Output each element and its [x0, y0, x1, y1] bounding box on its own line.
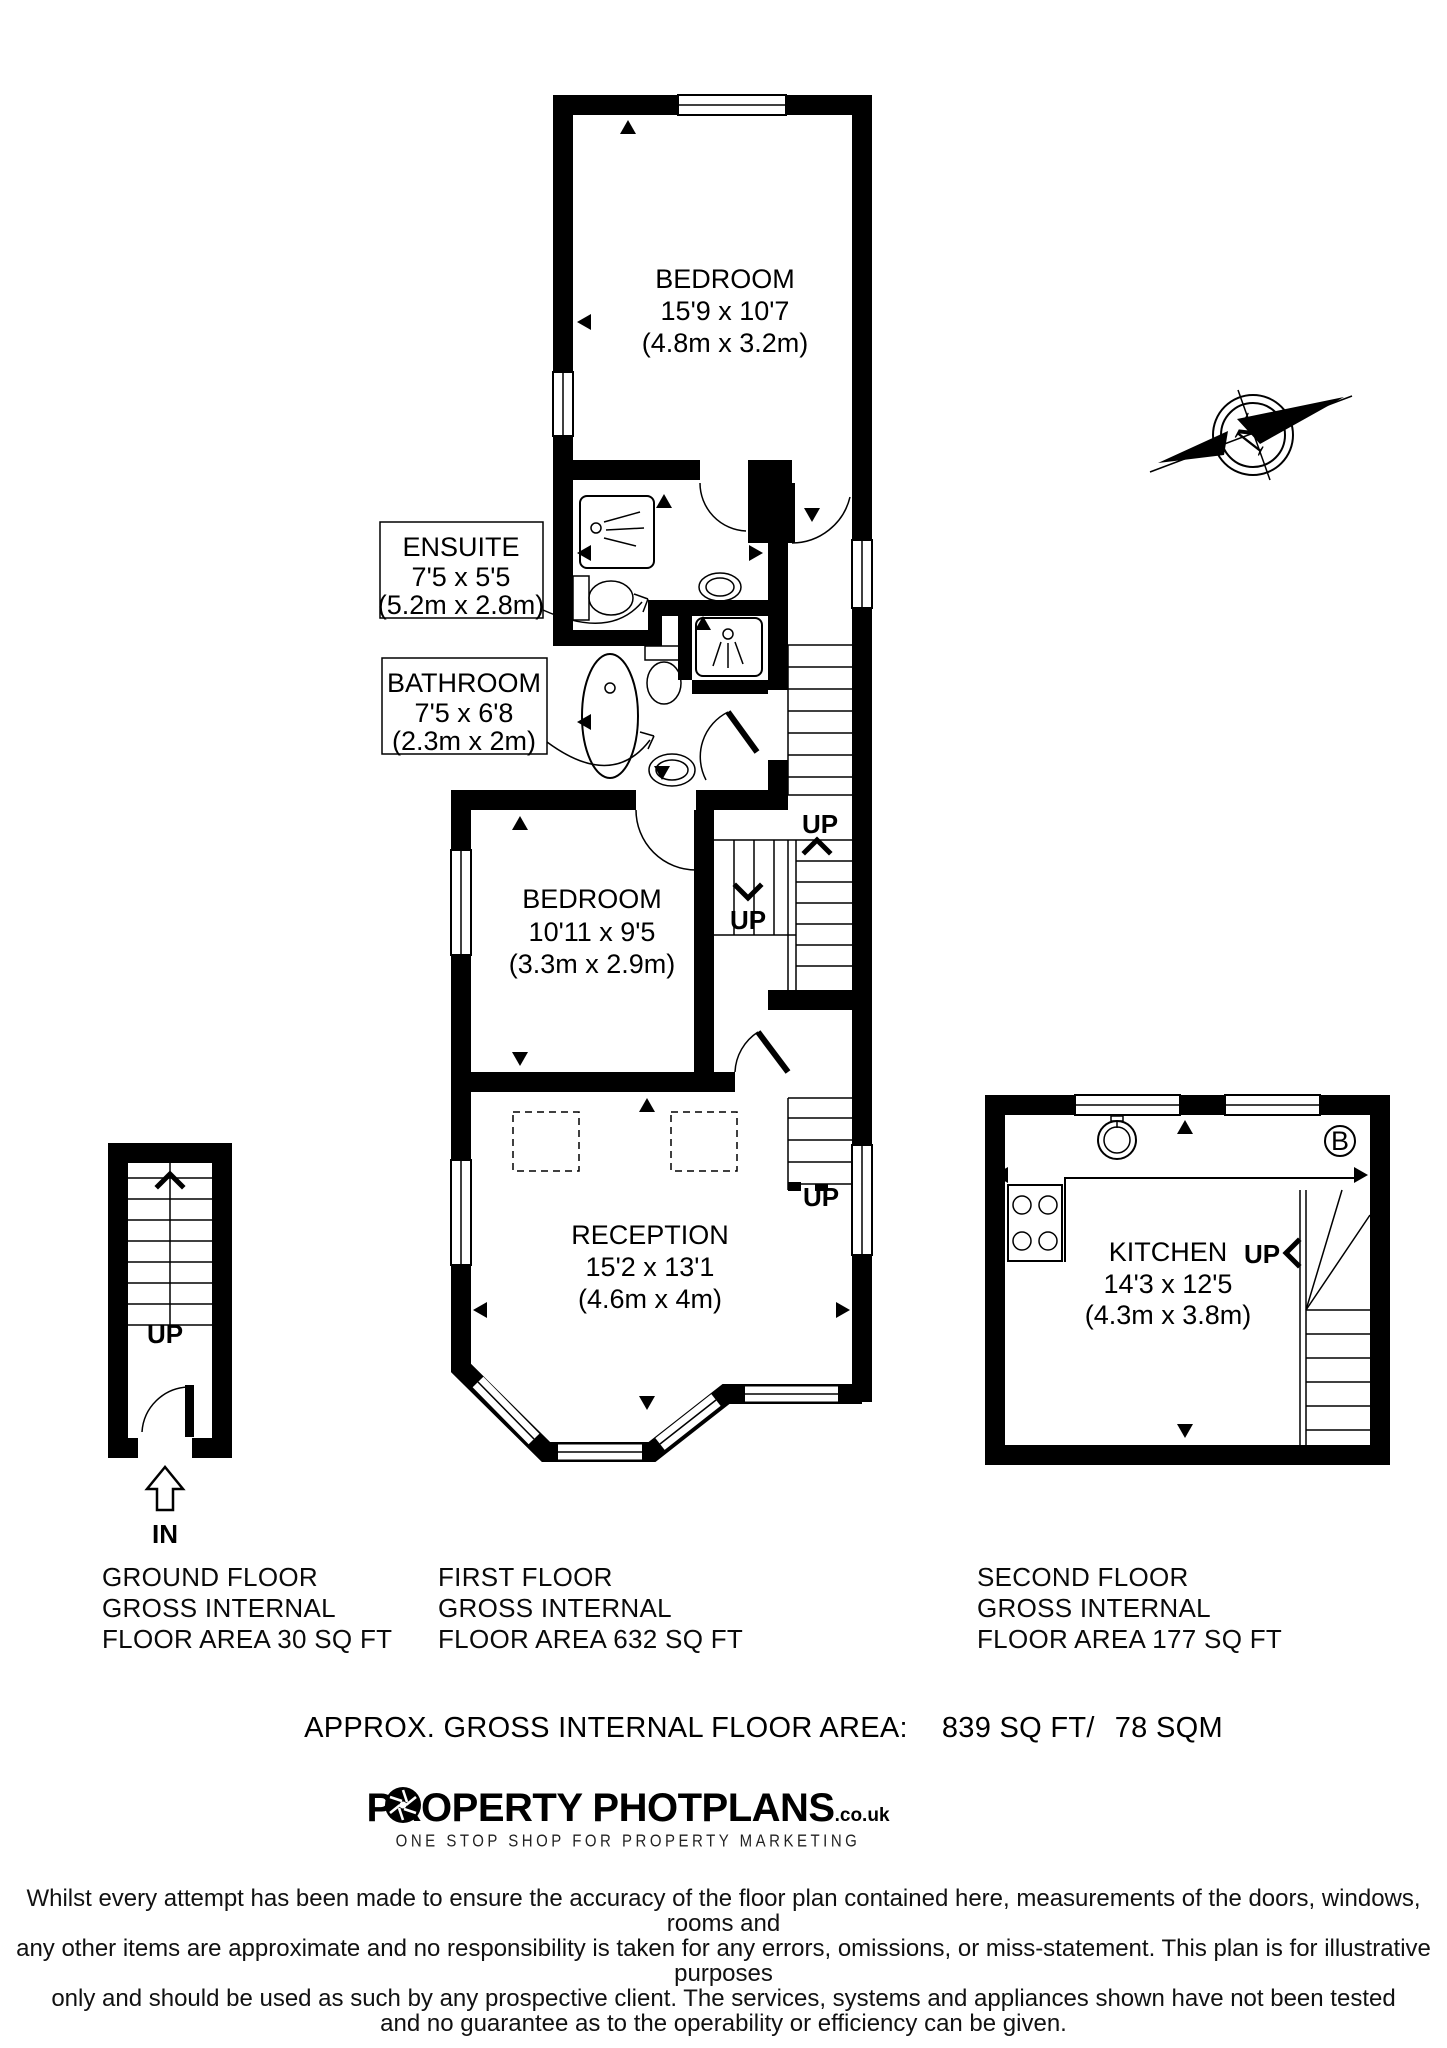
compass: N — [1150, 390, 1352, 480]
ground-floor-summary: GROUND FLOOR GROSS INTERNAL FLOOR AREA 3… — [102, 1562, 392, 1655]
disclaimer-line: and no guarantee as to the operability o… — [0, 2011, 1447, 2036]
window — [852, 1145, 872, 1255]
room-label-kitchen: KITCHEN 14'3 x 12'5 (4.3m x 3.8m) — [1085, 1237, 1252, 1330]
svg-text:(4.3m x 3.8m): (4.3m x 3.8m) — [1085, 1300, 1252, 1330]
floor-title: SECOND FLOOR — [977, 1562, 1282, 1593]
door-arc — [142, 1387, 188, 1432]
disclaimer: Whilst every attempt has been made to en… — [0, 1886, 1447, 2036]
hob-icon — [1008, 1185, 1062, 1261]
svg-text:BEDROOM: BEDROOM — [522, 884, 662, 914]
logo-tagline: ONE STOP SHOP FOR PROPERTY MARKETING — [383, 1832, 873, 1852]
window — [553, 372, 573, 436]
window — [678, 95, 786, 115]
svg-text:15'9 x 10'7: 15'9 x 10'7 — [661, 296, 790, 326]
up-label-kitchen: UP — [1244, 1239, 1280, 1269]
door-leaf — [185, 1385, 194, 1437]
room-label-bedroom1: BEDROOM 15'9 x 10'7 (4.8m x 3.2m) — [642, 264, 809, 358]
toilet-icon — [645, 646, 683, 704]
floor-title: FIRST FLOOR — [438, 1562, 743, 1593]
floor-line: GROSS INTERNAL — [977, 1593, 1282, 1624]
floor-line: GROSS INTERNAL — [438, 1593, 743, 1624]
stairs-kitchen-winder — [1300, 1190, 1370, 1445]
svg-text:ENSUITE: ENSUITE — [402, 532, 519, 562]
disclaimer-line: any other items are approximate and no r… — [0, 1936, 1447, 1986]
stairs-ground-floor — [128, 1163, 212, 1325]
svg-text:RECEPTION: RECEPTION — [571, 1220, 729, 1250]
total-area-line: APPROX. GROSS INTERNAL FLOOR AREA:839 SQ… — [40, 1712, 1447, 1745]
direction-chevrons — [147, 840, 1298, 1510]
shower-icon — [580, 496, 654, 568]
doors — [142, 483, 850, 1437]
disclaimer-line: Whilst every attempt has been made to en… — [0, 1886, 1447, 1936]
svg-text:(5.2m x 2.8m): (5.2m x 2.8m) — [378, 590, 545, 620]
floor-line: FLOOR AREA 177 SQ FT — [977, 1624, 1282, 1655]
entry-arrow-icon — [147, 1467, 183, 1510]
second-floor-summary: SECOND FLOOR GROSS INTERNAL FLOOR AREA 1… — [977, 1562, 1282, 1655]
floor-line: GROSS INTERNAL — [102, 1593, 392, 1624]
sink-icon — [1098, 1116, 1136, 1159]
door-arc — [636, 810, 696, 870]
svg-text:(4.8m x 3.2m): (4.8m x 3.2m) — [642, 328, 809, 358]
sink-icon — [699, 573, 741, 601]
boiler-icon: B — [1325, 1126, 1355, 1156]
total-area-sqft: 839 SQ FT/ — [942, 1712, 1095, 1745]
total-area-sqm: 78 SQM — [1115, 1712, 1223, 1745]
window — [1225, 1095, 1320, 1115]
up-label-first-top: UP — [802, 809, 838, 839]
door-arc — [735, 1032, 758, 1072]
svg-text:7'5 x 5'5: 7'5 x 5'5 — [412, 562, 511, 592]
svg-text:15'2 x 13'1: 15'2 x 13'1 — [586, 1252, 715, 1282]
room-label-bedroom2: BEDROOM 10'11 x 9'5 (3.3m x 2.9m) — [509, 884, 676, 979]
svg-text:(3.3m x 2.9m): (3.3m x 2.9m) — [509, 949, 676, 979]
toilet-icon — [573, 576, 633, 620]
room-label-reception: RECEPTION 15'2 x 13'1 (4.6m x 4m) — [571, 1220, 729, 1314]
floor-line: FLOOR AREA 632 SQ FT — [438, 1624, 743, 1655]
window — [451, 1160, 471, 1265]
camera-aperture-icon — [384, 1786, 422, 1824]
door-leaf — [758, 1032, 788, 1072]
up-label-reception: UP — [803, 1182, 839, 1212]
boiler-label: B — [1331, 1126, 1349, 1156]
stairs-reception — [788, 1098, 852, 1191]
svg-text:7'5 x 6'8: 7'5 x 6'8 — [415, 698, 514, 728]
dashed-furniture — [513, 1112, 737, 1171]
window — [852, 540, 872, 608]
first-floor-summary: FIRST FLOOR GROSS INTERNAL FLOOR AREA 63… — [438, 1562, 743, 1655]
bathroom-leader-arrow — [640, 732, 654, 749]
compass-south-pointer — [1158, 431, 1228, 463]
up-chevron-first — [805, 840, 829, 852]
down-chevron-first — [736, 886, 760, 898]
logo-suffix: .co.uk — [835, 1805, 890, 1827]
svg-text:BATHROOM: BATHROOM — [387, 668, 541, 698]
up-label-ground: UP — [147, 1319, 183, 1349]
logo: PROPERTY PHOT PLANS .co.uk ONE STOP SHOP… — [383, 1786, 873, 1850]
disclaimer-line: only and should be used as such by any p… — [0, 1986, 1447, 2011]
floor-line: FLOOR AREA 30 SQ FT — [102, 1624, 392, 1655]
svg-text:10'11 x 9'5: 10'11 x 9'5 — [529, 917, 656, 947]
floor-title: GROUND FLOOR — [102, 1562, 392, 1593]
logo-text-right: PLANS — [702, 1786, 835, 1831]
window — [451, 850, 471, 955]
door-arc — [700, 712, 728, 780]
total-area-label: APPROX. GROSS INTERNAL FLOOR AREA: — [304, 1712, 908, 1745]
door-arc — [792, 497, 850, 543]
window — [1075, 1095, 1180, 1115]
door-leaf — [728, 712, 757, 752]
svg-text:KITCHEN: KITCHEN — [1109, 1237, 1228, 1267]
svg-text:(4.6m x 4m): (4.6m x 4m) — [578, 1284, 722, 1314]
floorplan-page: { "compass": { "north_label": "N" }, "ro… — [0, 0, 1447, 2048]
svg-text:BEDROOM: BEDROOM — [655, 264, 795, 294]
left-chevron-kitchen — [1286, 1241, 1298, 1265]
up-label-first-mid: UP — [730, 905, 766, 935]
door-arc — [700, 483, 746, 531]
svg-text:14'3 x 12'5: 14'3 x 12'5 — [1104, 1269, 1233, 1299]
sink-icon — [649, 754, 695, 786]
svg-text:(2.3m x 2m): (2.3m x 2m) — [392, 726, 536, 756]
in-label: IN — [152, 1519, 178, 1549]
